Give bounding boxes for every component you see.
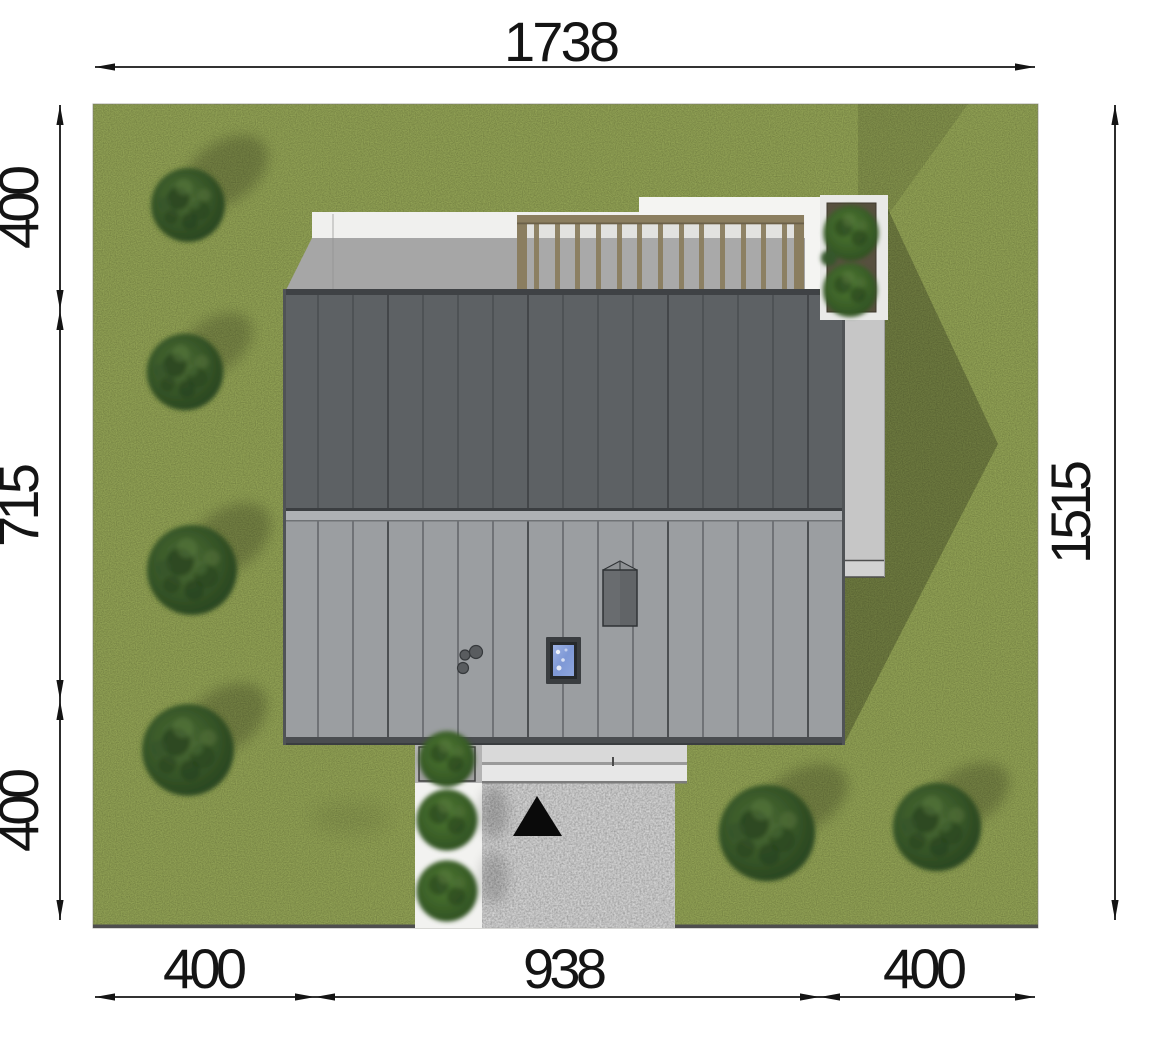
tree bbox=[893, 783, 981, 871]
bush-shadow bbox=[480, 852, 508, 904]
pergola bbox=[517, 215, 804, 292]
planter-shrub bbox=[821, 250, 837, 266]
tree bbox=[151, 168, 225, 242]
dimension-label-bottom-right: 400 bbox=[883, 937, 967, 1000]
site-plan-canvas: 1738 400 938 400 400 715 400 1515 bbox=[0, 0, 1153, 1050]
walkway-bushes bbox=[416, 731, 477, 922]
bush bbox=[419, 731, 475, 787]
side-wall bbox=[845, 320, 885, 577]
roof-upper-slope bbox=[283, 295, 845, 510]
bush-shadow bbox=[480, 786, 508, 838]
roof-terrace-planter bbox=[820, 195, 888, 320]
roof-left-edge bbox=[283, 289, 286, 745]
skylight bbox=[546, 637, 581, 684]
upper-platform bbox=[639, 197, 805, 215]
tree bbox=[142, 704, 234, 796]
driveway bbox=[482, 783, 675, 928]
dimension-label-bottom-middle: 938 bbox=[523, 937, 607, 1000]
dimension-label-left-middle: 715 bbox=[0, 463, 50, 547]
dimension-label-right-total: 1515 bbox=[1039, 460, 1102, 564]
bush bbox=[416, 789, 477, 850]
house-roof bbox=[283, 289, 845, 745]
tree bbox=[147, 334, 224, 411]
roof-lower-slope bbox=[283, 521, 845, 737]
dimension-label-left-bottom: 400 bbox=[0, 768, 50, 852]
planter-shrub bbox=[823, 263, 877, 317]
dimension-label-top-total: 1738 bbox=[504, 10, 620, 73]
roof-top-edge bbox=[283, 289, 845, 295]
site-plan: 1738 400 938 400 400 715 400 1515 bbox=[0, 0, 1153, 1050]
upper-platform-side bbox=[805, 197, 820, 292]
roof-right-edge bbox=[842, 289, 845, 745]
roof-ridge bbox=[283, 508, 845, 522]
entry-porch bbox=[482, 745, 687, 784]
bush bbox=[416, 860, 477, 921]
tree bbox=[719, 785, 815, 881]
dimension-label-left-top: 400 bbox=[0, 165, 50, 249]
chimney bbox=[603, 561, 637, 626]
dimension-label-bottom-left: 400 bbox=[163, 937, 247, 1000]
tree bbox=[147, 525, 237, 615]
